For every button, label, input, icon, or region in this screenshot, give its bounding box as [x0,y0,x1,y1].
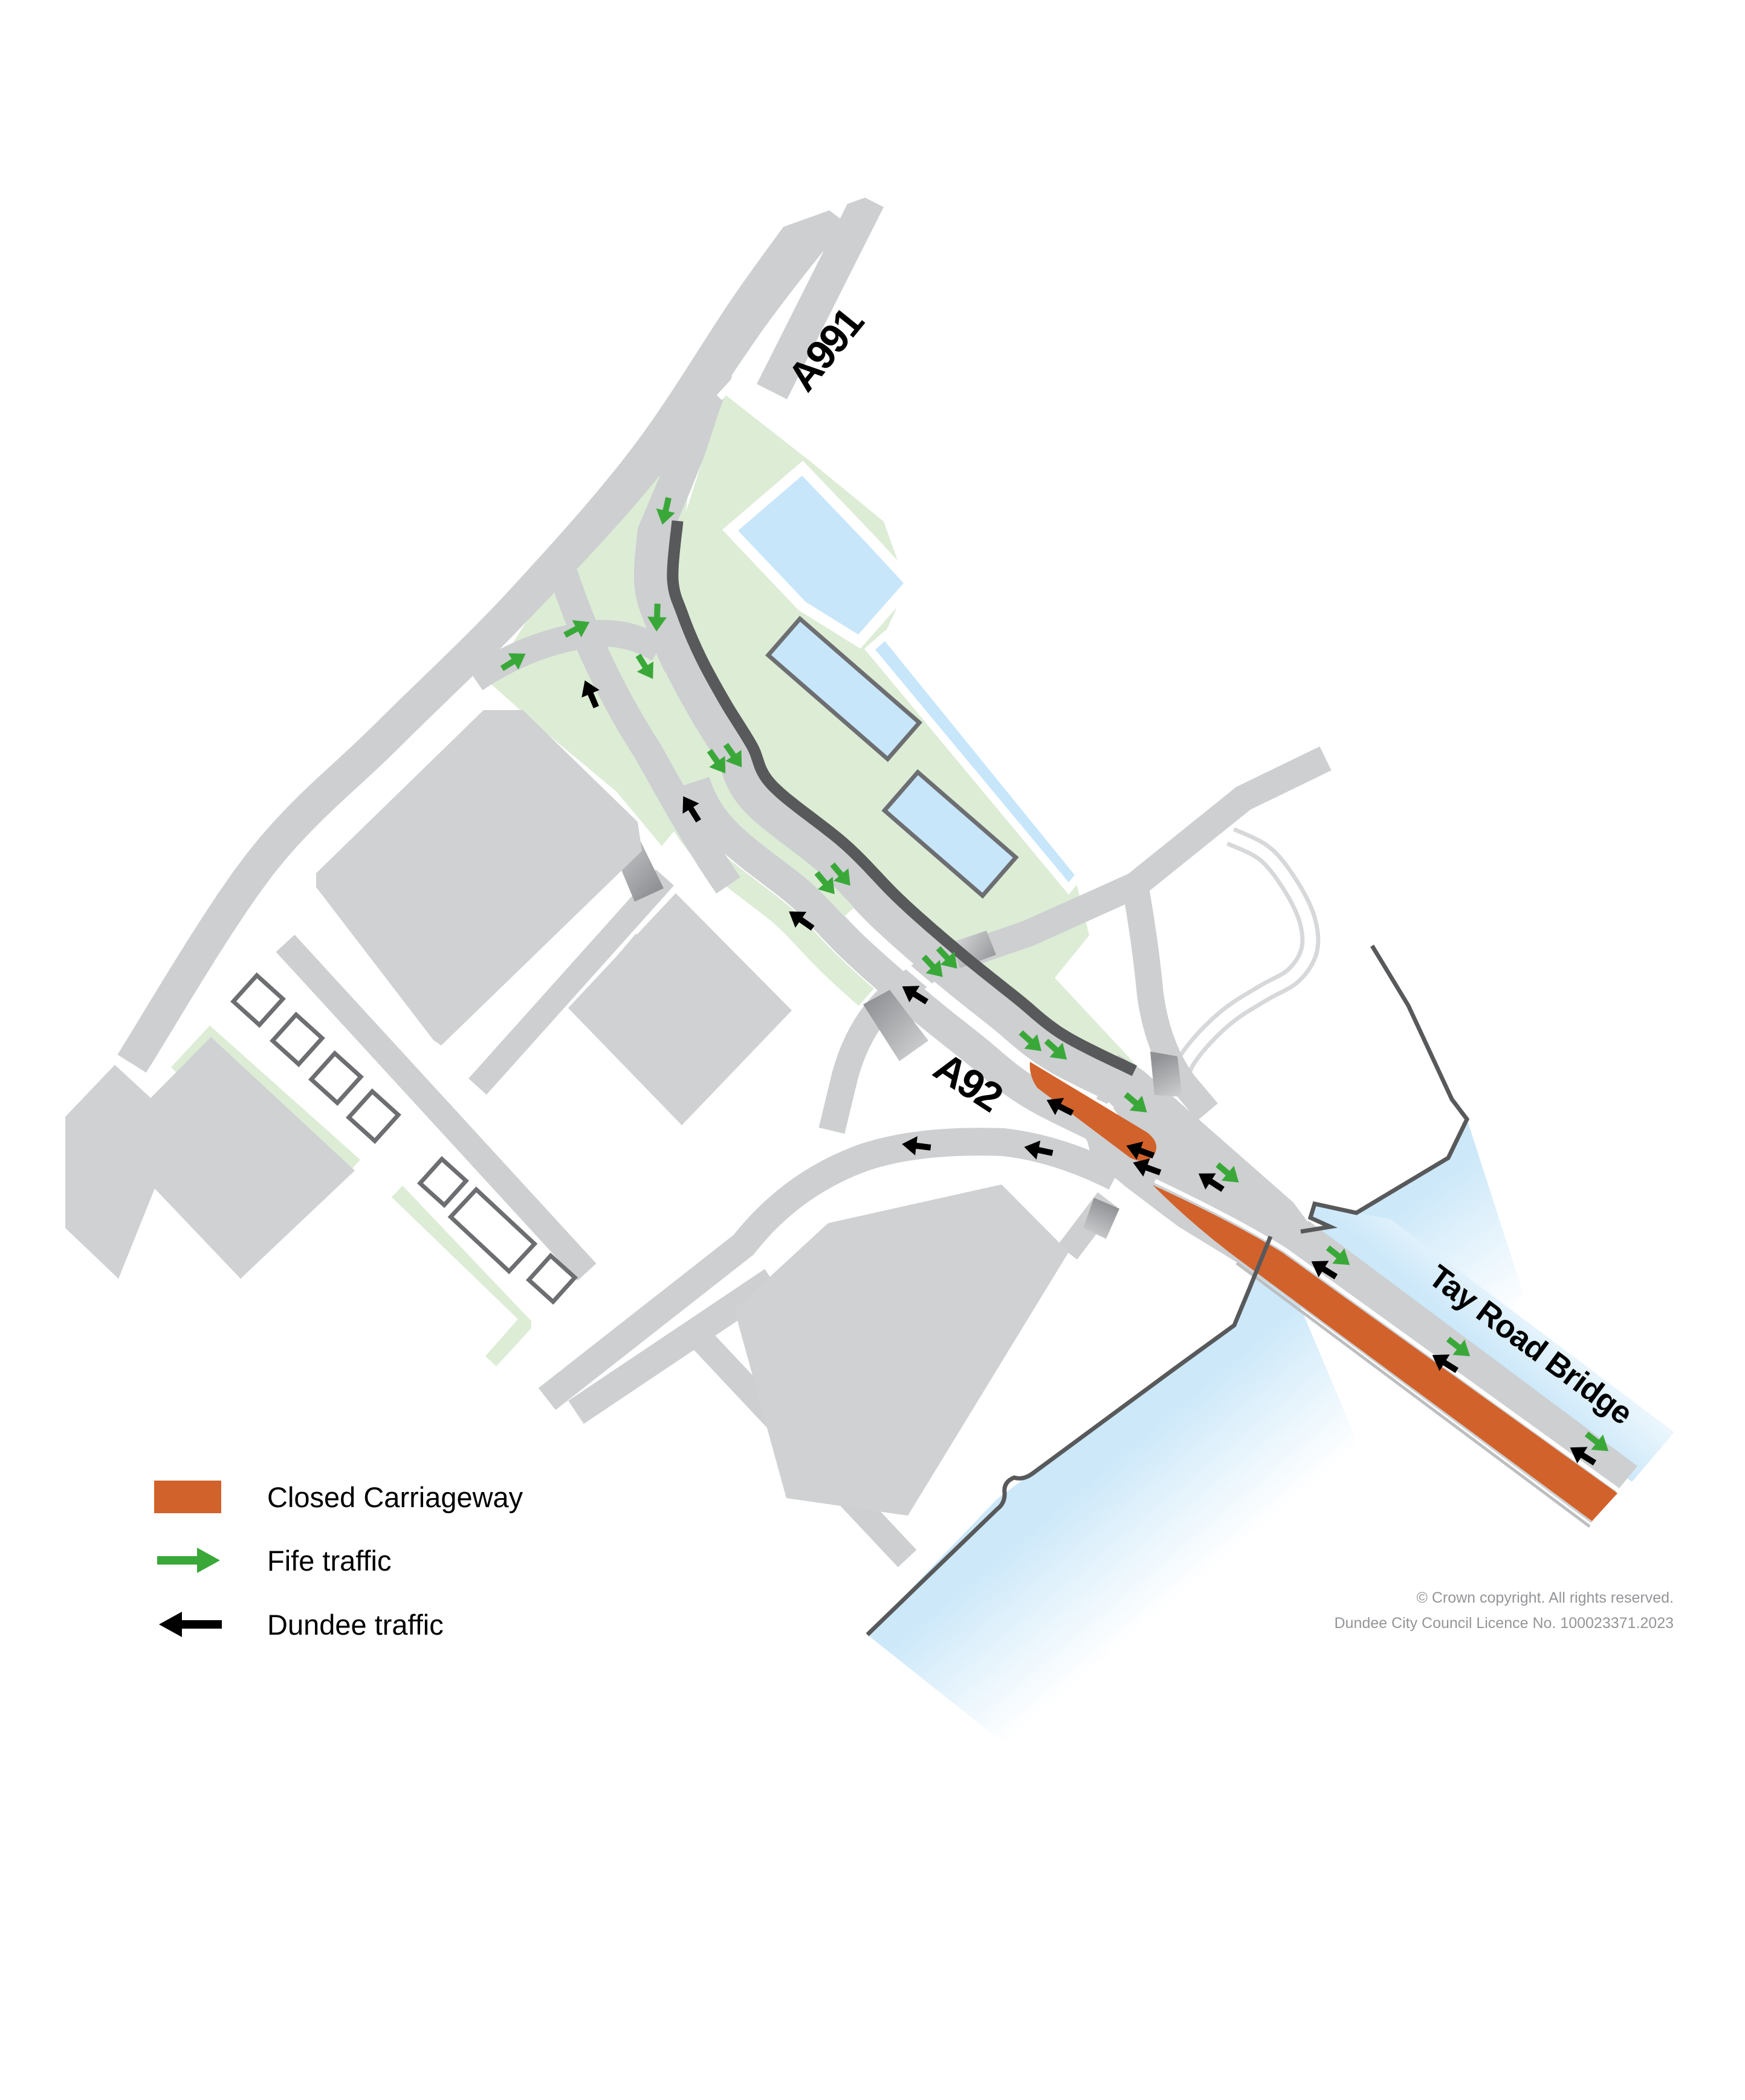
svg-text:Dundee traffic: Dundee traffic [267,1609,444,1641]
svg-text:Fife traffic: Fife traffic [267,1545,391,1577]
svg-text:Closed Carriageway: Closed Carriageway [267,1481,523,1513]
svg-text:© Crown copyright. All rights: © Crown copyright. All rights reserved. [1416,1589,1674,1606]
svg-text:Dundee City Council Licence No: Dundee City Council Licence No. 10002337… [1335,1615,1674,1632]
